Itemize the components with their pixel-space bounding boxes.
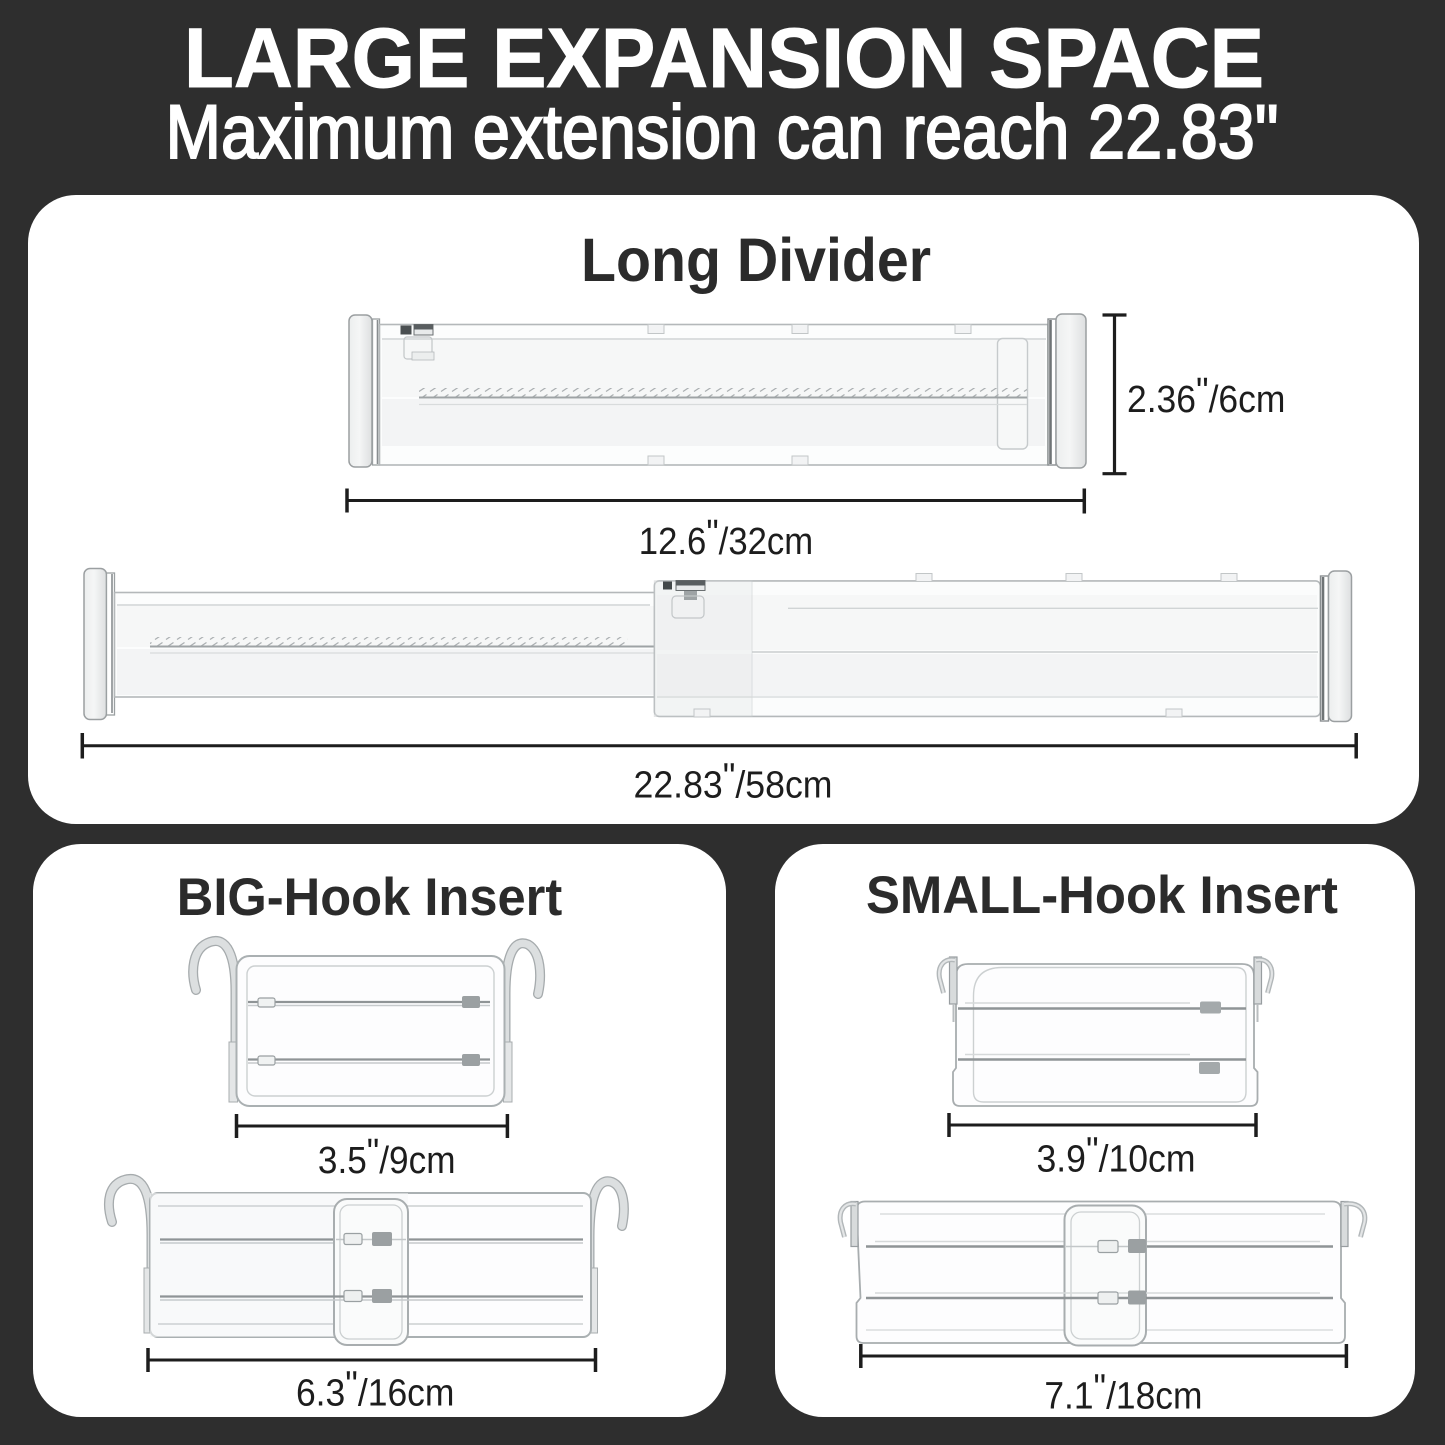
svg-text:SMALL-Hook Insert: SMALL-Hook Insert [866,866,1338,925]
svg-text:7.1"/18cm: 7.1"/18cm [1044,1368,1202,1418]
svg-text:3.5"/9cm: 3.5"/9cm [318,1132,456,1182]
svg-text:Maximum extension can reach 22: Maximum extension can reach 22.83" [166,90,1279,175]
svg-text:6.3"/16cm: 6.3"/16cm [296,1365,455,1415]
svg-text:12.6"/32cm: 12.6"/32cm [639,513,813,563]
svg-text:Long Divider: Long Divider [581,226,931,294]
svg-text:BIG-Hook Insert: BIG-Hook Insert [177,868,563,927]
svg-text:3.9"/10cm: 3.9"/10cm [1037,1131,1196,1181]
